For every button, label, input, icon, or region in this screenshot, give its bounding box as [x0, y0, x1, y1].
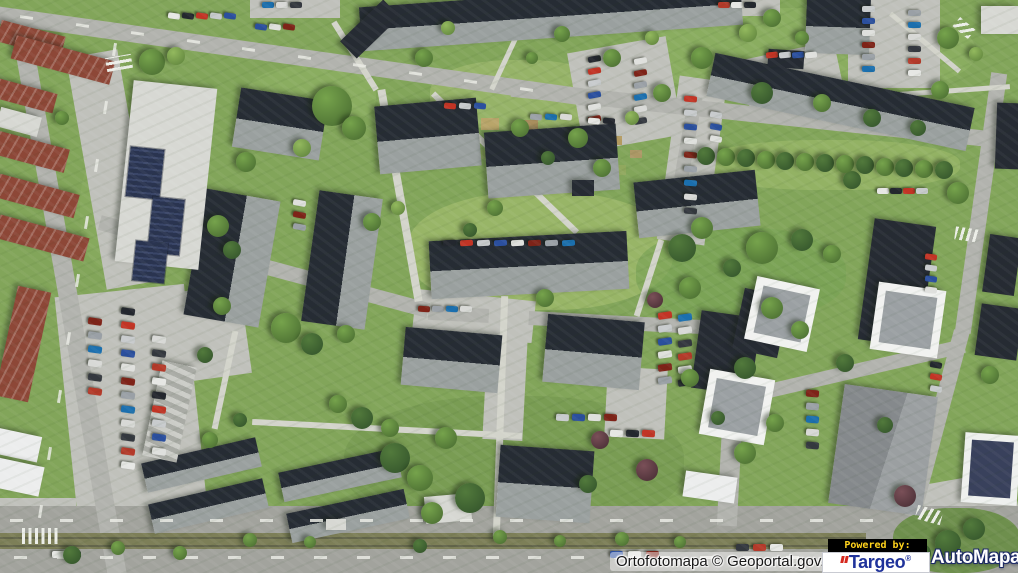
tree: [223, 241, 241, 259]
lane-marking: [271, 556, 284, 559]
car: [684, 193, 697, 200]
car: [916, 188, 928, 194]
car: [908, 70, 921, 76]
car: [862, 66, 875, 72]
tree: [337, 325, 355, 343]
car: [684, 95, 697, 102]
tree: [739, 24, 757, 42]
bush: [876, 158, 894, 176]
lane-marking: [75, 274, 80, 287]
garden-plot: [630, 150, 642, 158]
tree: [536, 289, 554, 307]
aerial-imagery: [0, 0, 1018, 573]
tree: [202, 432, 218, 448]
car: [588, 414, 601, 422]
lane-marking: [210, 519, 223, 522]
targeo-logo-text: Targeo: [849, 552, 905, 573]
bush: [717, 148, 735, 166]
tree: [813, 94, 831, 112]
car: [604, 414, 617, 422]
tree: [236, 152, 256, 172]
tree: [763, 9, 781, 27]
car: [494, 240, 507, 247]
car: [626, 430, 639, 438]
tree: [668, 234, 696, 262]
tree: [435, 427, 457, 449]
tree: [636, 459, 658, 481]
car: [562, 240, 575, 247]
bush: [895, 159, 913, 177]
car: [684, 109, 697, 116]
lane-marking: [360, 519, 373, 522]
car: [290, 2, 302, 8]
building: [744, 276, 820, 352]
car: [903, 188, 915, 194]
car: [766, 51, 778, 58]
tree: [139, 49, 165, 75]
car: [276, 2, 288, 8]
tree: [381, 419, 399, 437]
tree: [541, 151, 555, 165]
building: [0, 428, 42, 463]
car: [293, 199, 307, 207]
tree: [421, 502, 443, 524]
tree: [233, 413, 247, 427]
car: [806, 441, 820, 449]
automapa-logo[interactable]: AutoMapa®: [931, 547, 1018, 569]
lane-marking: [571, 556, 584, 559]
lane-marking: [410, 519, 423, 522]
car: [658, 376, 673, 385]
car: [806, 389, 820, 397]
tree: [415, 49, 433, 67]
car: [930, 361, 943, 369]
car: [930, 373, 943, 381]
car: [678, 326, 693, 335]
crosswalk: [22, 528, 58, 544]
lane-marking: [314, 556, 327, 559]
bush: [816, 154, 834, 172]
car: [684, 207, 697, 214]
car: [779, 51, 791, 58]
tree: [301, 333, 323, 355]
car: [862, 6, 875, 12]
powered-by-label: Powered by:: [828, 539, 927, 552]
tree: [746, 232, 778, 264]
tree: [761, 297, 783, 319]
lane-marking: [610, 519, 623, 522]
car: [572, 414, 585, 422]
car: [684, 179, 697, 186]
tree: [493, 530, 507, 544]
building: [975, 303, 1018, 360]
lane-marking: [185, 556, 198, 559]
car: [731, 2, 743, 8]
lane-marking: [660, 519, 673, 522]
car: [806, 402, 820, 410]
tree: [937, 27, 959, 49]
lane-marking: [260, 519, 273, 522]
tree: [243, 533, 257, 547]
tree: [293, 139, 311, 157]
tree: [55, 111, 69, 125]
car: [293, 211, 307, 219]
car: [684, 151, 697, 158]
tree: [723, 259, 741, 277]
map-viewport[interactable]: Ortofotomapa © Geoportal.gov.pl Powered …: [0, 0, 1018, 573]
lane-marking: [47, 447, 52, 460]
lane-marking: [310, 519, 323, 522]
car: [678, 339, 693, 348]
car: [862, 18, 875, 24]
bush: [796, 153, 814, 171]
tree: [691, 47, 713, 69]
car: [908, 34, 921, 40]
car: [293, 223, 307, 231]
bush: [836, 155, 854, 173]
car: [255, 23, 268, 31]
map-attribution: Ortofotomapa © Geoportal.gov.pl: [610, 552, 842, 571]
lane-marking: [486, 556, 499, 559]
car: [603, 117, 616, 124]
car: [182, 12, 195, 20]
tree: [487, 200, 503, 216]
car: [658, 337, 673, 346]
car: [556, 414, 569, 422]
tree: [931, 81, 949, 99]
tree: [791, 321, 809, 339]
tree: [751, 82, 773, 104]
tree: [963, 518, 985, 540]
building: [961, 432, 1018, 506]
garden-plot: [481, 118, 499, 130]
lane-marking: [710, 519, 723, 522]
bush: [935, 161, 953, 179]
tree: [363, 213, 381, 231]
bush: [776, 152, 794, 170]
tree: [197, 347, 213, 363]
tree: [554, 26, 570, 42]
building: [828, 384, 938, 516]
car: [806, 415, 820, 423]
tree: [691, 217, 713, 239]
car: [283, 23, 296, 31]
building: [0, 457, 45, 496]
bush: [856, 156, 874, 174]
tree: [304, 536, 316, 548]
tree: [167, 47, 185, 65]
car: [459, 102, 472, 109]
tree: [894, 485, 916, 507]
tree: [463, 223, 477, 237]
car: [460, 306, 472, 313]
lane-marking: [10, 519, 23, 522]
lane-marking: [510, 519, 523, 522]
car: [545, 240, 558, 247]
tree: [271, 313, 301, 343]
lane-marking: [443, 556, 456, 559]
solar-panel-array: [132, 240, 168, 283]
solar-panel-array: [125, 146, 164, 199]
car: [545, 113, 558, 120]
tree: [791, 229, 813, 251]
car: [262, 2, 274, 8]
lane-marking: [760, 519, 773, 522]
tree: [591, 431, 609, 449]
car: [224, 12, 237, 20]
car: [474, 102, 487, 109]
tree: [734, 442, 756, 464]
tree: [947, 182, 969, 204]
tree: [711, 411, 725, 425]
building: [982, 234, 1018, 296]
tree: [413, 539, 427, 553]
tree: [342, 116, 366, 140]
tree: [329, 395, 347, 413]
car: [678, 352, 693, 361]
tree: [674, 536, 686, 548]
car: [560, 113, 573, 120]
tree: [603, 49, 621, 67]
tree: [823, 245, 841, 263]
car: [443, 240, 456, 247]
car: [610, 430, 623, 438]
car: [168, 12, 181, 20]
bush: [697, 147, 715, 165]
car: [908, 58, 921, 64]
tree: [207, 215, 229, 237]
lane-marking: [460, 519, 473, 522]
car: [753, 544, 766, 551]
car: [530, 113, 543, 120]
lane-marking: [100, 556, 113, 559]
building: [981, 6, 1018, 34]
car: [210, 12, 223, 20]
bush: [915, 160, 933, 178]
car: [444, 102, 457, 109]
tree: [969, 47, 983, 61]
car: [511, 240, 524, 247]
lane-marking: [400, 556, 413, 559]
lane-marking: [228, 556, 241, 559]
crosswalk: [954, 226, 980, 242]
automapa-logo-text: AutoMapa: [931, 547, 1018, 568]
car: [446, 306, 458, 313]
tree: [863, 109, 881, 127]
car: [805, 51, 817, 58]
tree: [579, 475, 597, 493]
tree: [554, 535, 566, 547]
car: [642, 430, 655, 438]
tree: [910, 120, 926, 136]
car: [528, 240, 541, 247]
tree: [63, 546, 81, 564]
car: [684, 123, 697, 130]
tree: [647, 292, 663, 308]
tree: [351, 407, 373, 429]
targeo-mark-icon: [841, 556, 848, 563]
lane-marking: [14, 556, 27, 559]
registered-symbol: ®: [905, 554, 911, 563]
lane-marking: [143, 556, 156, 559]
tree: [568, 128, 588, 148]
tree: [981, 366, 999, 384]
lane-marking: [110, 519, 123, 522]
tree: [625, 111, 639, 125]
car: [588, 117, 601, 124]
tree: [455, 483, 485, 513]
crosswalk: [105, 54, 133, 72]
tree: [526, 52, 538, 64]
tree: [213, 297, 231, 315]
tree: [766, 414, 784, 432]
car: [908, 46, 921, 52]
tree: [679, 277, 701, 299]
tree: [653, 84, 671, 102]
building: [542, 314, 645, 390]
car: [877, 188, 889, 194]
bush: [757, 151, 775, 169]
building: [699, 369, 775, 445]
building: [572, 180, 594, 196]
building: [301, 190, 383, 330]
car: [658, 363, 673, 372]
tree: [836, 354, 854, 372]
targeo-logo[interactable]: Targeo ®: [822, 552, 930, 573]
building: [326, 519, 346, 530]
building: [401, 327, 503, 393]
car: [432, 306, 444, 313]
lane-marking: [60, 519, 73, 522]
tree: [391, 201, 405, 215]
tree: [511, 119, 529, 137]
car: [269, 23, 282, 31]
car: [718, 2, 730, 8]
tree: [593, 159, 611, 177]
car: [862, 30, 875, 36]
car: [418, 306, 430, 313]
lane-marking: [810, 519, 823, 522]
tree: [380, 443, 410, 473]
car: [930, 385, 943, 393]
tree: [843, 171, 861, 189]
car: [862, 42, 875, 48]
car: [684, 165, 697, 172]
tree: [795, 31, 809, 45]
lane-marking: [860, 519, 873, 522]
car: [744, 2, 756, 8]
bush: [737, 149, 755, 167]
tree: [407, 465, 433, 491]
lane-marking: [560, 519, 573, 522]
building: [0, 286, 51, 403]
lane-marking: [56, 389, 61, 402]
car: [908, 10, 921, 16]
building: [995, 103, 1018, 170]
car: [890, 188, 902, 194]
car: [196, 12, 209, 20]
lane-marking: [357, 556, 370, 559]
tree: [173, 546, 187, 560]
car: [792, 51, 804, 58]
car: [658, 350, 673, 359]
car: [806, 428, 820, 436]
car: [684, 137, 697, 144]
tree: [615, 532, 629, 546]
car: [477, 240, 490, 247]
car: [908, 22, 921, 28]
tree: [877, 417, 893, 433]
car: [770, 544, 783, 551]
tree: [111, 541, 125, 555]
tram-track: [0, 537, 866, 539]
car: [736, 544, 749, 551]
car: [460, 240, 473, 247]
car: [862, 54, 875, 60]
tree: [441, 21, 455, 35]
lane-marking: [528, 556, 541, 559]
tree: [681, 369, 699, 387]
tree: [645, 31, 659, 45]
lane-marking: [160, 519, 173, 522]
tree: [734, 357, 756, 379]
